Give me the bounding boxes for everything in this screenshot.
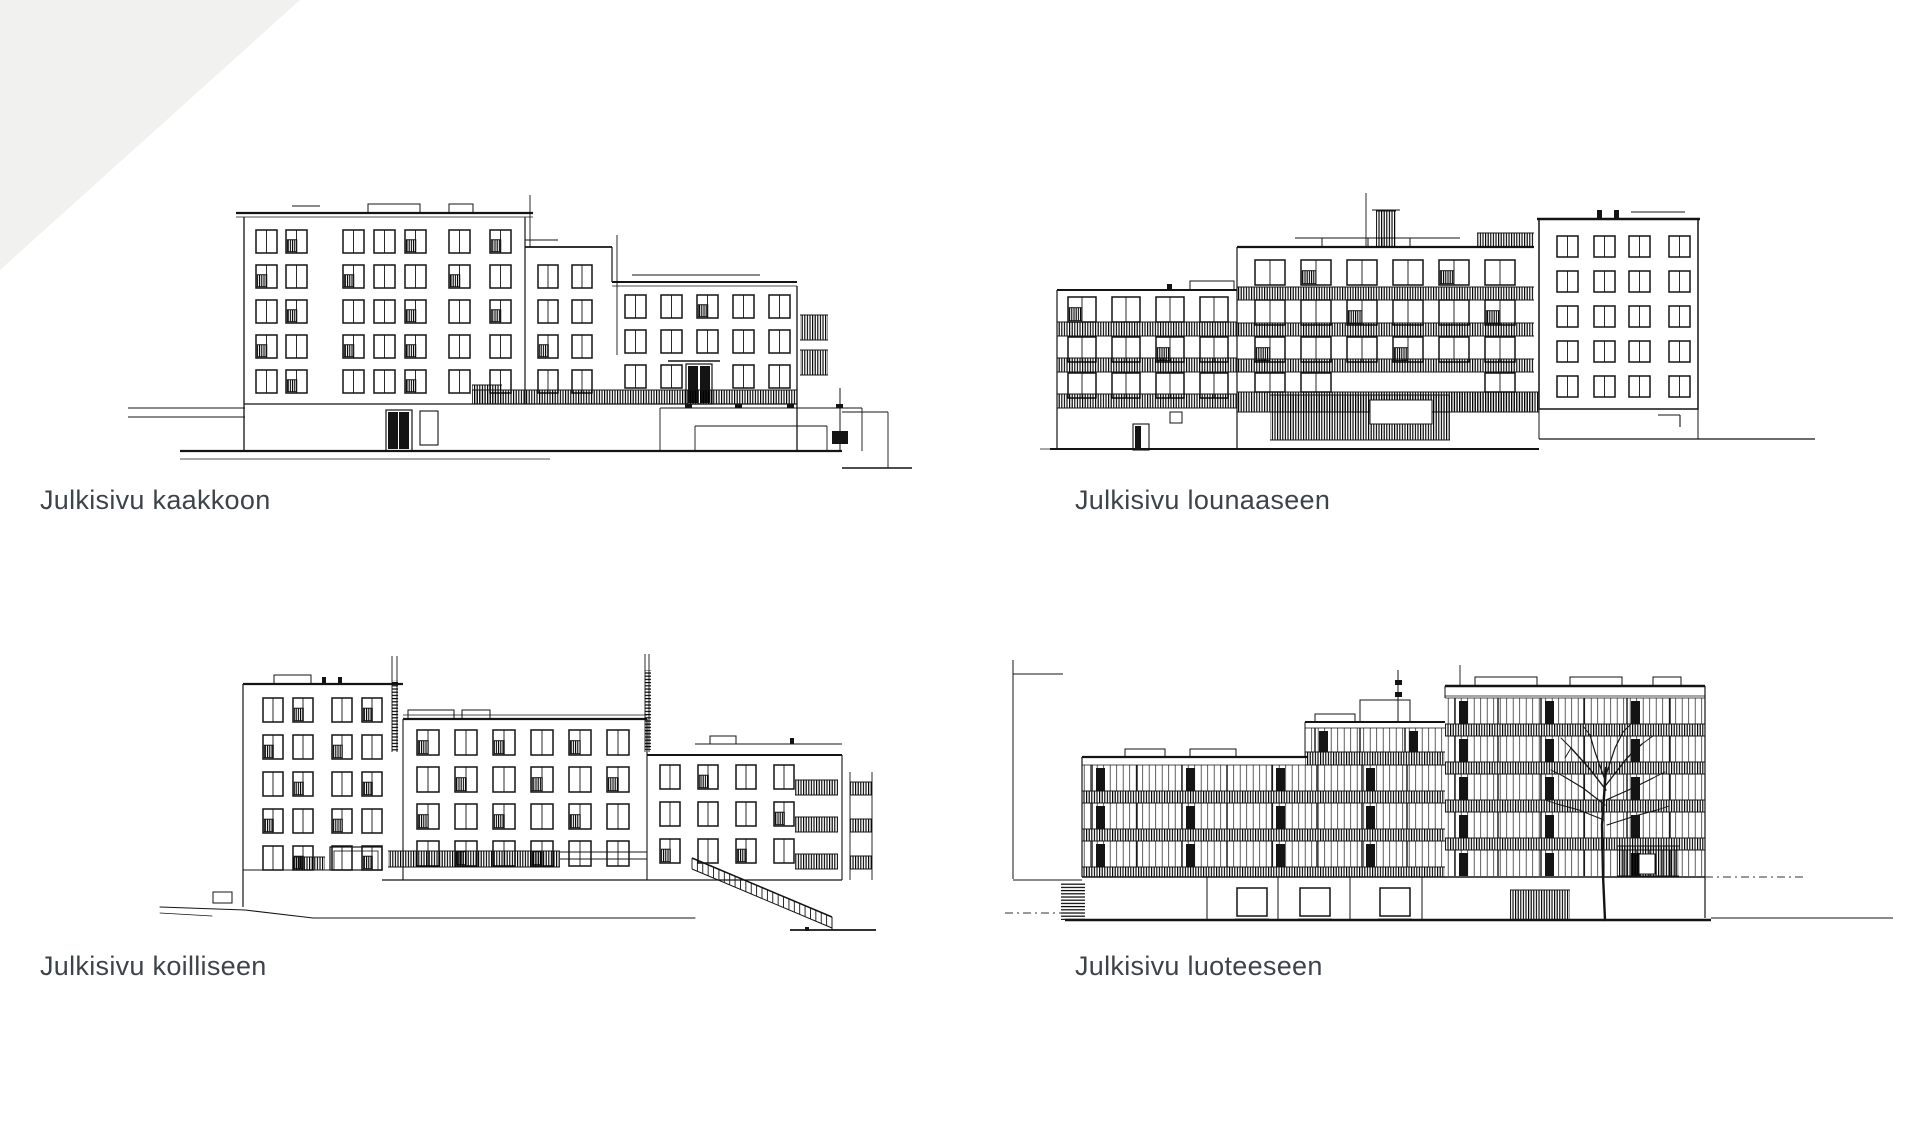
caption-northeast: Julkisivu koilliseen xyxy=(40,952,267,982)
elevation-northeast xyxy=(150,640,910,950)
drawing-sheet: Julkisivu kaakkoon Julkisivu lounaaseen … xyxy=(0,0,1920,1126)
elevation-southeast-drawing xyxy=(120,140,920,475)
caption-northwest: Julkisivu luoteeseen xyxy=(1075,952,1323,982)
caption-southwest: Julkisivu lounaaseen xyxy=(1075,486,1330,516)
elevation-northeast-drawing xyxy=(150,640,910,950)
elevation-southeast xyxy=(120,140,920,475)
elevation-southwest xyxy=(1040,185,1820,485)
elevation-southwest-drawing xyxy=(1040,185,1820,485)
caption-southeast: Julkisivu kaakkoon xyxy=(40,486,271,516)
elevation-northwest-drawing xyxy=(1005,640,1900,950)
elevation-northwest xyxy=(1005,640,1900,950)
